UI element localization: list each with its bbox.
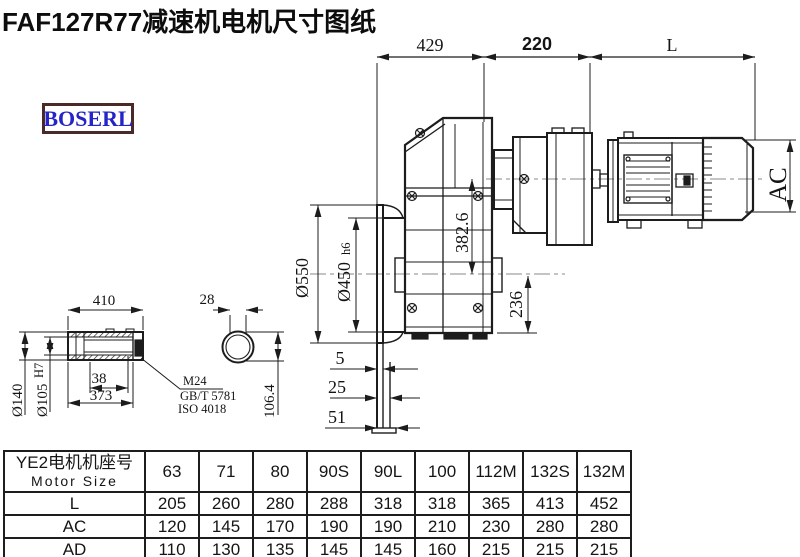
- cell: 160: [415, 538, 469, 557]
- dim-5-label: 5: [336, 348, 345, 368]
- col-132S: 132S: [523, 451, 577, 492]
- dim-140-label: Ø140: [10, 384, 26, 417]
- col-63: 63: [145, 451, 199, 492]
- col-112M: 112M: [469, 451, 523, 492]
- table-row-AC: AC 120 145 170 190 190 210 230 280 280: [4, 515, 631, 538]
- dim-28-label: 28: [200, 292, 215, 308]
- table-header-motor-size: YE2电机机座号 Motor Size: [4, 451, 145, 492]
- cell: 280: [577, 515, 631, 538]
- cell: 318: [415, 492, 469, 515]
- cell: 145: [361, 538, 415, 557]
- table-row-AD: AD 110 130 135 145 145 160 215 215 215: [4, 538, 631, 557]
- row-label-AC: AC: [4, 515, 145, 538]
- cell: 365: [469, 492, 523, 515]
- col-100: 100: [415, 451, 469, 492]
- cell: 280: [523, 515, 577, 538]
- dim-25-label: 25: [328, 377, 346, 397]
- callout-iso: ISO 4018: [178, 402, 226, 416]
- motor-size-table: YE2电机机座号 Motor Size 63 71 80 90S 90L 100…: [3, 450, 632, 557]
- main-view-drawing: [310, 57, 796, 433]
- cell: 190: [361, 515, 415, 538]
- col-71: 71: [199, 451, 253, 492]
- cell: 260: [199, 492, 253, 515]
- dim-AC-label: AC: [765, 167, 792, 202]
- cell: 318: [361, 492, 415, 515]
- cell: 452: [577, 492, 631, 515]
- dim-410-label: 410: [93, 293, 116, 309]
- callout-gbt: GB/T 5781: [180, 389, 236, 403]
- cell: 205: [145, 492, 199, 515]
- dim-51-label: 51: [328, 407, 346, 427]
- dim-L-label: L: [667, 35, 678, 55]
- row-label-L: L: [4, 492, 145, 515]
- dim-429-label: 429: [417, 35, 444, 55]
- cell: 215: [523, 538, 577, 557]
- drawing-sheet: FAF127R77减速机电机尺寸图纸 BOSERL: [0, 0, 800, 557]
- cell: 413: [523, 492, 577, 515]
- cell: 215: [577, 538, 631, 557]
- cell: 135: [253, 538, 307, 557]
- row-label-AD: AD: [4, 538, 145, 557]
- cell: 145: [199, 515, 253, 538]
- shaft-detail-drawing: [19, 310, 284, 415]
- cell: 230: [469, 515, 523, 538]
- cell: 120: [145, 515, 199, 538]
- dim-105-tol-label: H7: [32, 363, 46, 378]
- dim-220-label: 220: [522, 34, 552, 54]
- col-80: 80: [253, 451, 307, 492]
- input-stage: [494, 128, 608, 245]
- cell: 280: [253, 492, 307, 515]
- cell: 170: [253, 515, 307, 538]
- dim-450-label: Ø450: [334, 262, 354, 302]
- cell: 215: [469, 538, 523, 557]
- col-90S: 90S: [307, 451, 361, 492]
- dim-373-label: 373: [90, 388, 113, 404]
- header-en: Motor Size: [5, 473, 144, 490]
- cell: 110: [145, 538, 199, 557]
- table-row-L: L 205 260 280 288 318 318 365 413 452: [4, 492, 631, 515]
- header-cn: YE2电机机座号: [5, 453, 144, 473]
- dim-3826-label: 382.6: [452, 213, 472, 254]
- dim-38-label: 38: [92, 371, 107, 387]
- gear-housing: [395, 118, 502, 339]
- cell: 210: [415, 515, 469, 538]
- col-90L: 90L: [361, 451, 415, 492]
- dim-105-label: Ø105: [35, 384, 51, 417]
- cell: 130: [199, 538, 253, 557]
- dim-1064-label: 106.4: [262, 384, 278, 418]
- dim-236-label: 236: [506, 291, 526, 318]
- table-header-row: YE2电机机座号 Motor Size 63 71 80 90S 90L 100…: [4, 451, 631, 492]
- motor: [608, 132, 753, 228]
- dim-550-label: Ø550: [292, 258, 312, 298]
- dim-450-tol-label: h6: [339, 243, 353, 256]
- cell: 288: [307, 492, 361, 515]
- col-132M: 132M: [577, 451, 631, 492]
- callout-m24: M24: [183, 374, 207, 388]
- output-flange: [372, 205, 405, 433]
- cell: 145: [307, 538, 361, 557]
- cell: 190: [307, 515, 361, 538]
